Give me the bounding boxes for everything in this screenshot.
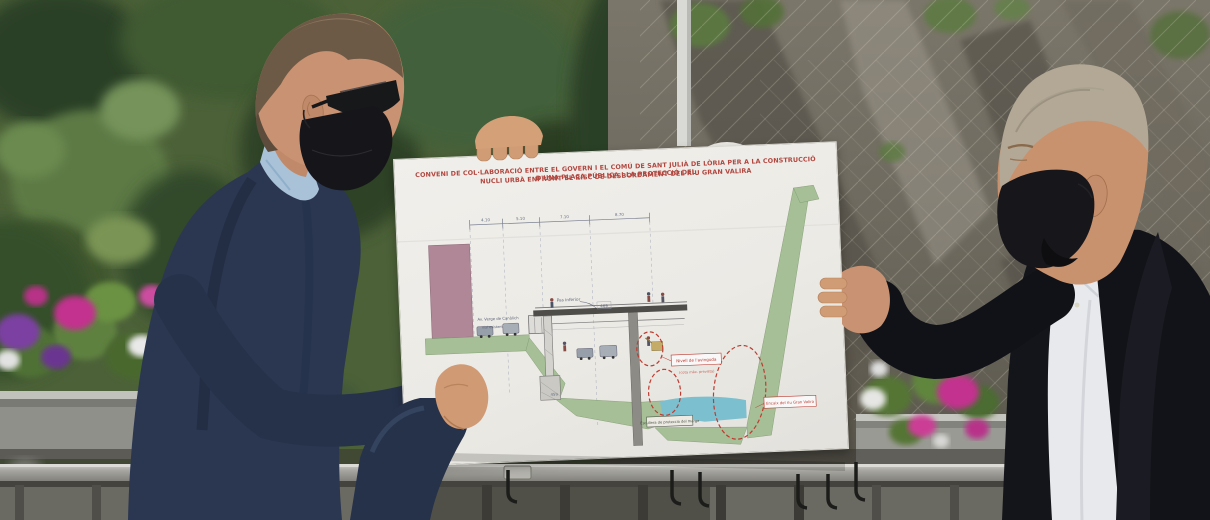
- photo-scene: CONVENI DE COL·LABORACIÓ ENTRE EL GOVERN…: [0, 0, 1210, 520]
- poster-board: CONVENI DE COL·LABORACIÓ ENTRE EL GOVERN…: [393, 141, 849, 467]
- cross-section-diagram: 4.10 5.10 7.10 8.70: [394, 142, 848, 465]
